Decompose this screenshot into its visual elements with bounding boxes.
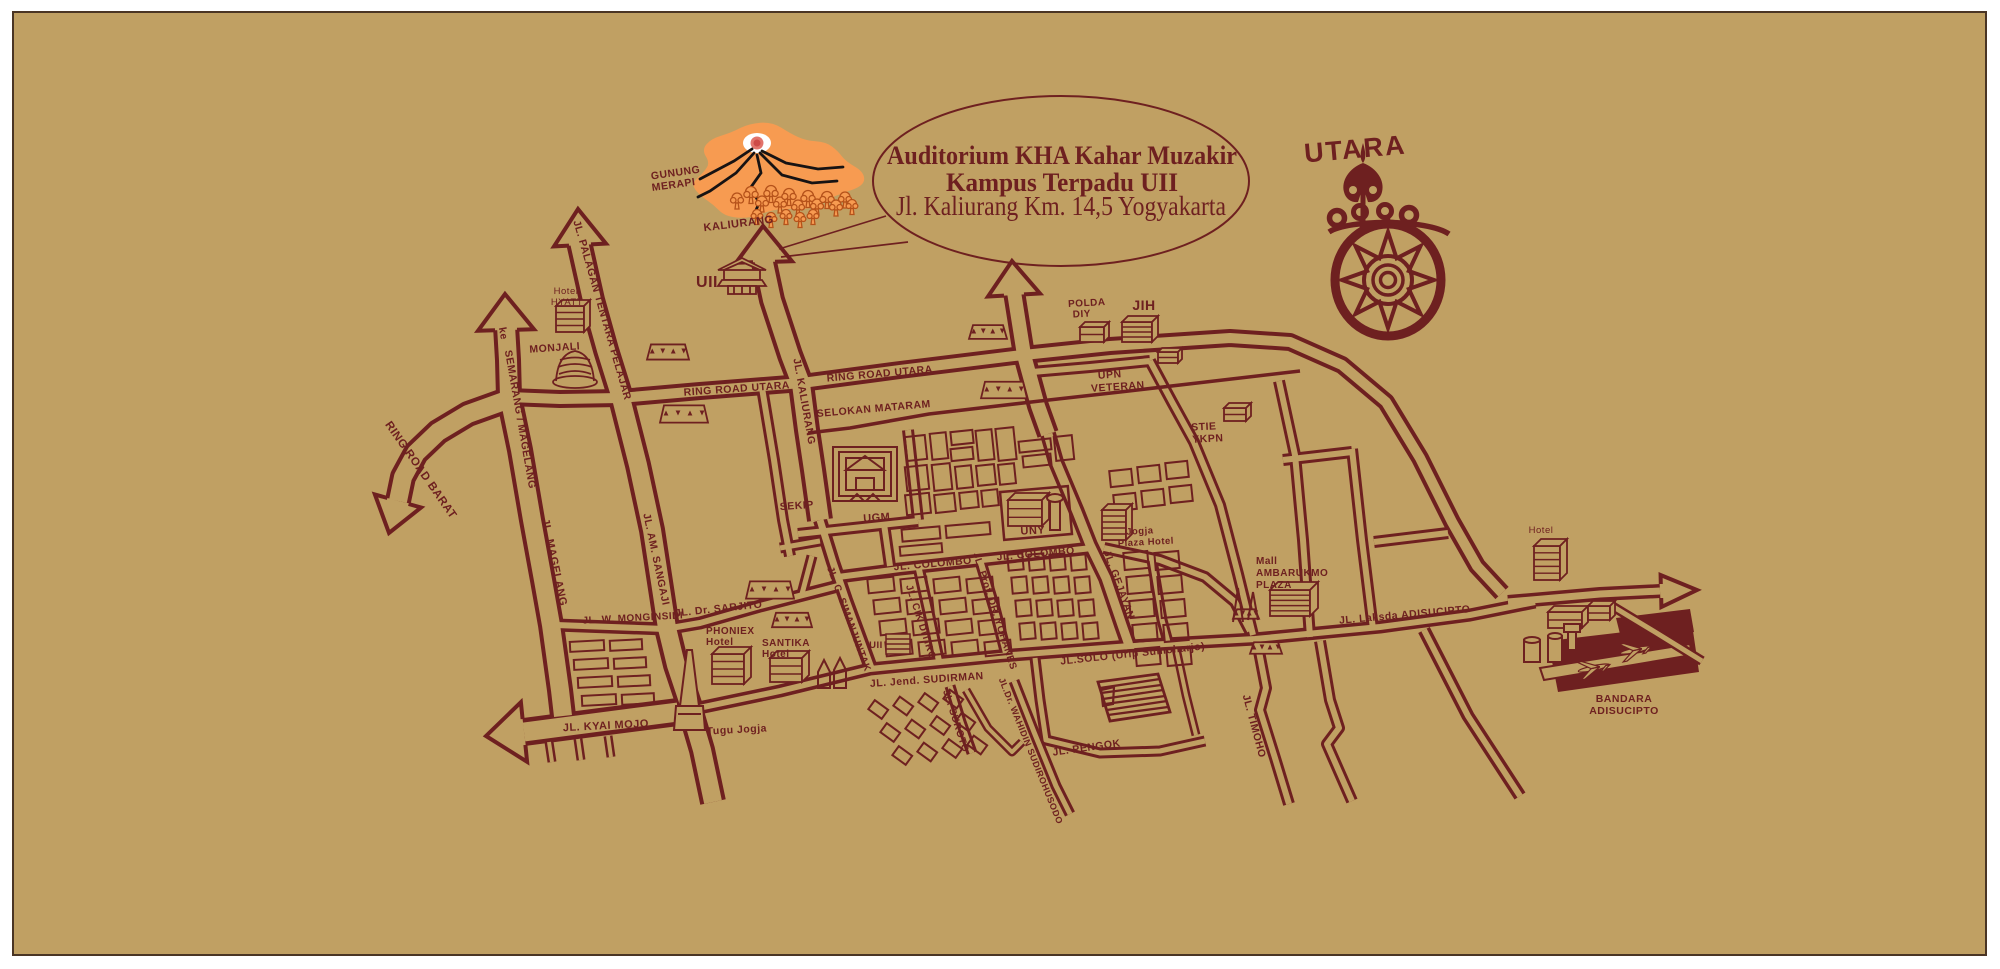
svg-text:BANDARA: BANDARA — [1596, 693, 1653, 705]
svg-text:SEKIP: SEKIP — [779, 499, 814, 513]
svg-text:Hotel: Hotel — [706, 637, 734, 648]
svg-text:STIE: STIE — [1191, 420, 1217, 433]
svg-text:ADISUCIPTO: ADISUCIPTO — [1589, 705, 1659, 717]
svg-text:Hotel: Hotel — [1529, 525, 1554, 536]
svg-text:HYATT: HYATT — [551, 297, 583, 308]
svg-text:UII: UII — [869, 640, 883, 651]
svg-text:PHONIEX: PHONIEX — [706, 626, 755, 637]
svg-text:Auditorium KHA Kahar Muzakir: Auditorium KHA Kahar Muzakir — [887, 141, 1237, 170]
svg-text:PLAZA: PLAZA — [1256, 580, 1292, 591]
svg-text:SANTIKA: SANTIKA — [762, 638, 810, 649]
svg-text:UGM: UGM — [863, 511, 891, 525]
svg-text:YKPN: YKPN — [1192, 432, 1224, 446]
svg-text:Hotel: Hotel — [554, 286, 579, 297]
svg-text:Mall: Mall — [1256, 556, 1277, 567]
svg-text:JIH: JIH — [1132, 297, 1155, 313]
svg-text:ke: ke — [496, 326, 510, 341]
svg-text:UII: UII — [696, 274, 718, 291]
svg-text:UPN: UPN — [1098, 368, 1122, 382]
svg-text:Jl. Kaliurang Km. 14,5 Yogyaka: Jl. Kaliurang Km. 14,5 Yogyakarta — [896, 191, 1226, 221]
svg-text:Hotel: Hotel — [762, 649, 790, 660]
svg-text:AMBARUKMO: AMBARUKMO — [1256, 568, 1328, 579]
svg-text:DIY: DIY — [1073, 309, 1092, 321]
svg-text:UNY: UNY — [1020, 524, 1045, 537]
